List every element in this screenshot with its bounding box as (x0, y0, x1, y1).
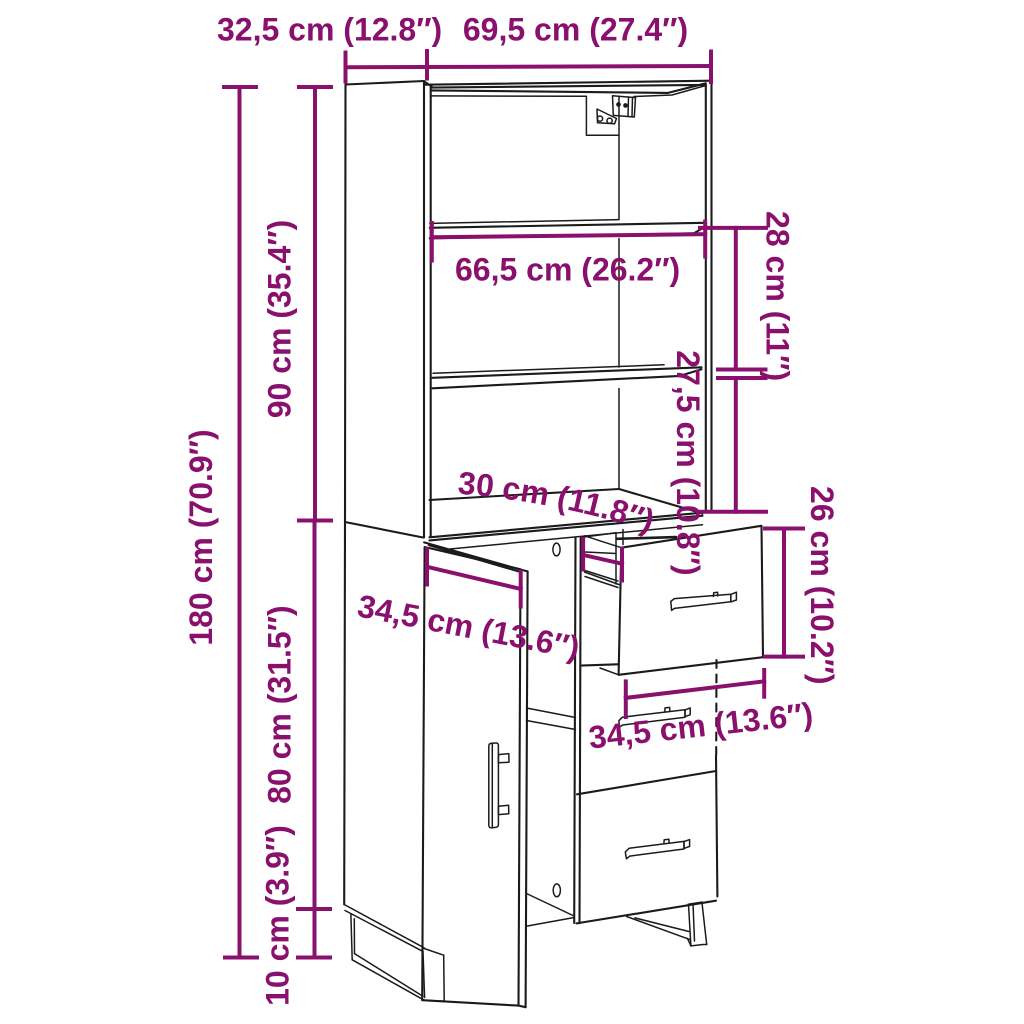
svg-text:80 cm (31.5″): 80 cm (31.5″) (262, 605, 298, 804)
svg-text:10 cm (3.9″): 10 cm (3.9″) (260, 825, 296, 1006)
svg-text:28 cm (11″): 28 cm (11″) (760, 211, 796, 381)
svg-text:32,5 cm (12.8″): 32,5 cm (12.8″) (217, 12, 442, 48)
svg-text:66,5 cm (26.2″): 66,5 cm (26.2″) (455, 252, 680, 288)
svg-text:90 cm (35.4″): 90 cm (35.4″) (262, 220, 298, 419)
svg-text:69,5 cm (27.4″): 69,5 cm (27.4″) (463, 12, 688, 48)
svg-text:27,5 cm (10.8″): 27,5 cm (10.8″) (670, 350, 706, 575)
svg-text:26 cm (10.2″): 26 cm (10.2″) (804, 486, 840, 685)
svg-text:180 cm (70.9″): 180 cm (70.9″) (183, 429, 219, 645)
